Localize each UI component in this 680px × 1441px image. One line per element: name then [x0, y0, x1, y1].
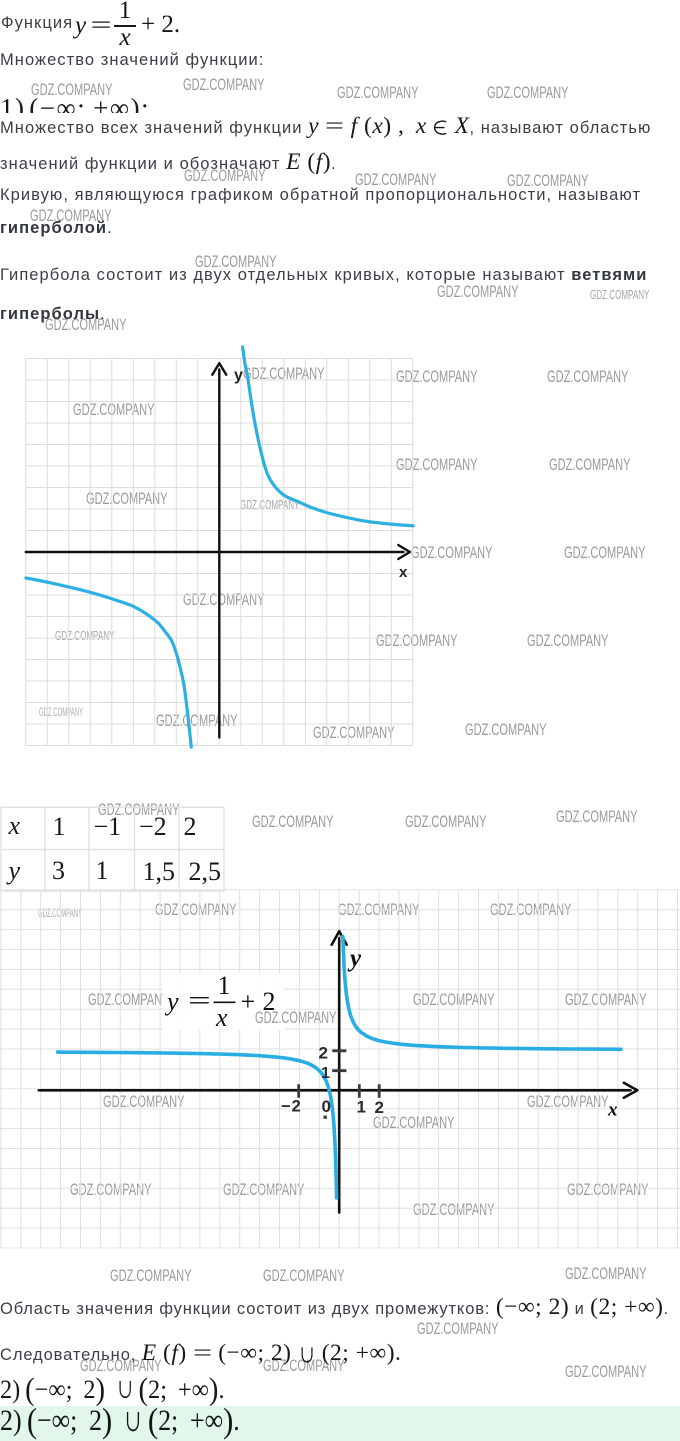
svg-text:1: 1	[96, 856, 109, 885]
svg-text:1,5: 1,5	[143, 857, 176, 886]
svg-text:+: +	[241, 987, 256, 1016]
svg-text:2: 2	[184, 812, 197, 841]
svg-text:x: x	[215, 1003, 228, 1032]
svg-text:−1: −1	[94, 812, 122, 841]
svg-text:−2: −2	[139, 812, 167, 841]
svg-text:y: y	[164, 987, 179, 1016]
svg-text:1: 1	[357, 1097, 367, 1116]
svg-text:−2: −2	[281, 1098, 302, 1116]
svg-text:2,5: 2,5	[189, 857, 222, 886]
svg-text:1: 1	[218, 971, 231, 1000]
svg-text:x: x	[399, 564, 408, 581]
svg-text:x: x	[8, 811, 21, 840]
svg-text:=: =	[188, 987, 211, 1015]
svg-text:3: 3	[52, 856, 65, 885]
svg-text:y: y	[347, 945, 362, 972]
svg-text:0: 0	[322, 1097, 332, 1116]
svg-text:2: 2	[375, 1098, 385, 1117]
svg-text:y: y	[234, 367, 243, 384]
svg-text:1: 1	[321, 1065, 331, 1082]
svg-text:2: 2	[319, 1044, 329, 1063]
svg-text:x: x	[607, 1100, 618, 1121]
svg-text:y: y	[6, 856, 21, 885]
svg-text:1: 1	[53, 812, 66, 841]
